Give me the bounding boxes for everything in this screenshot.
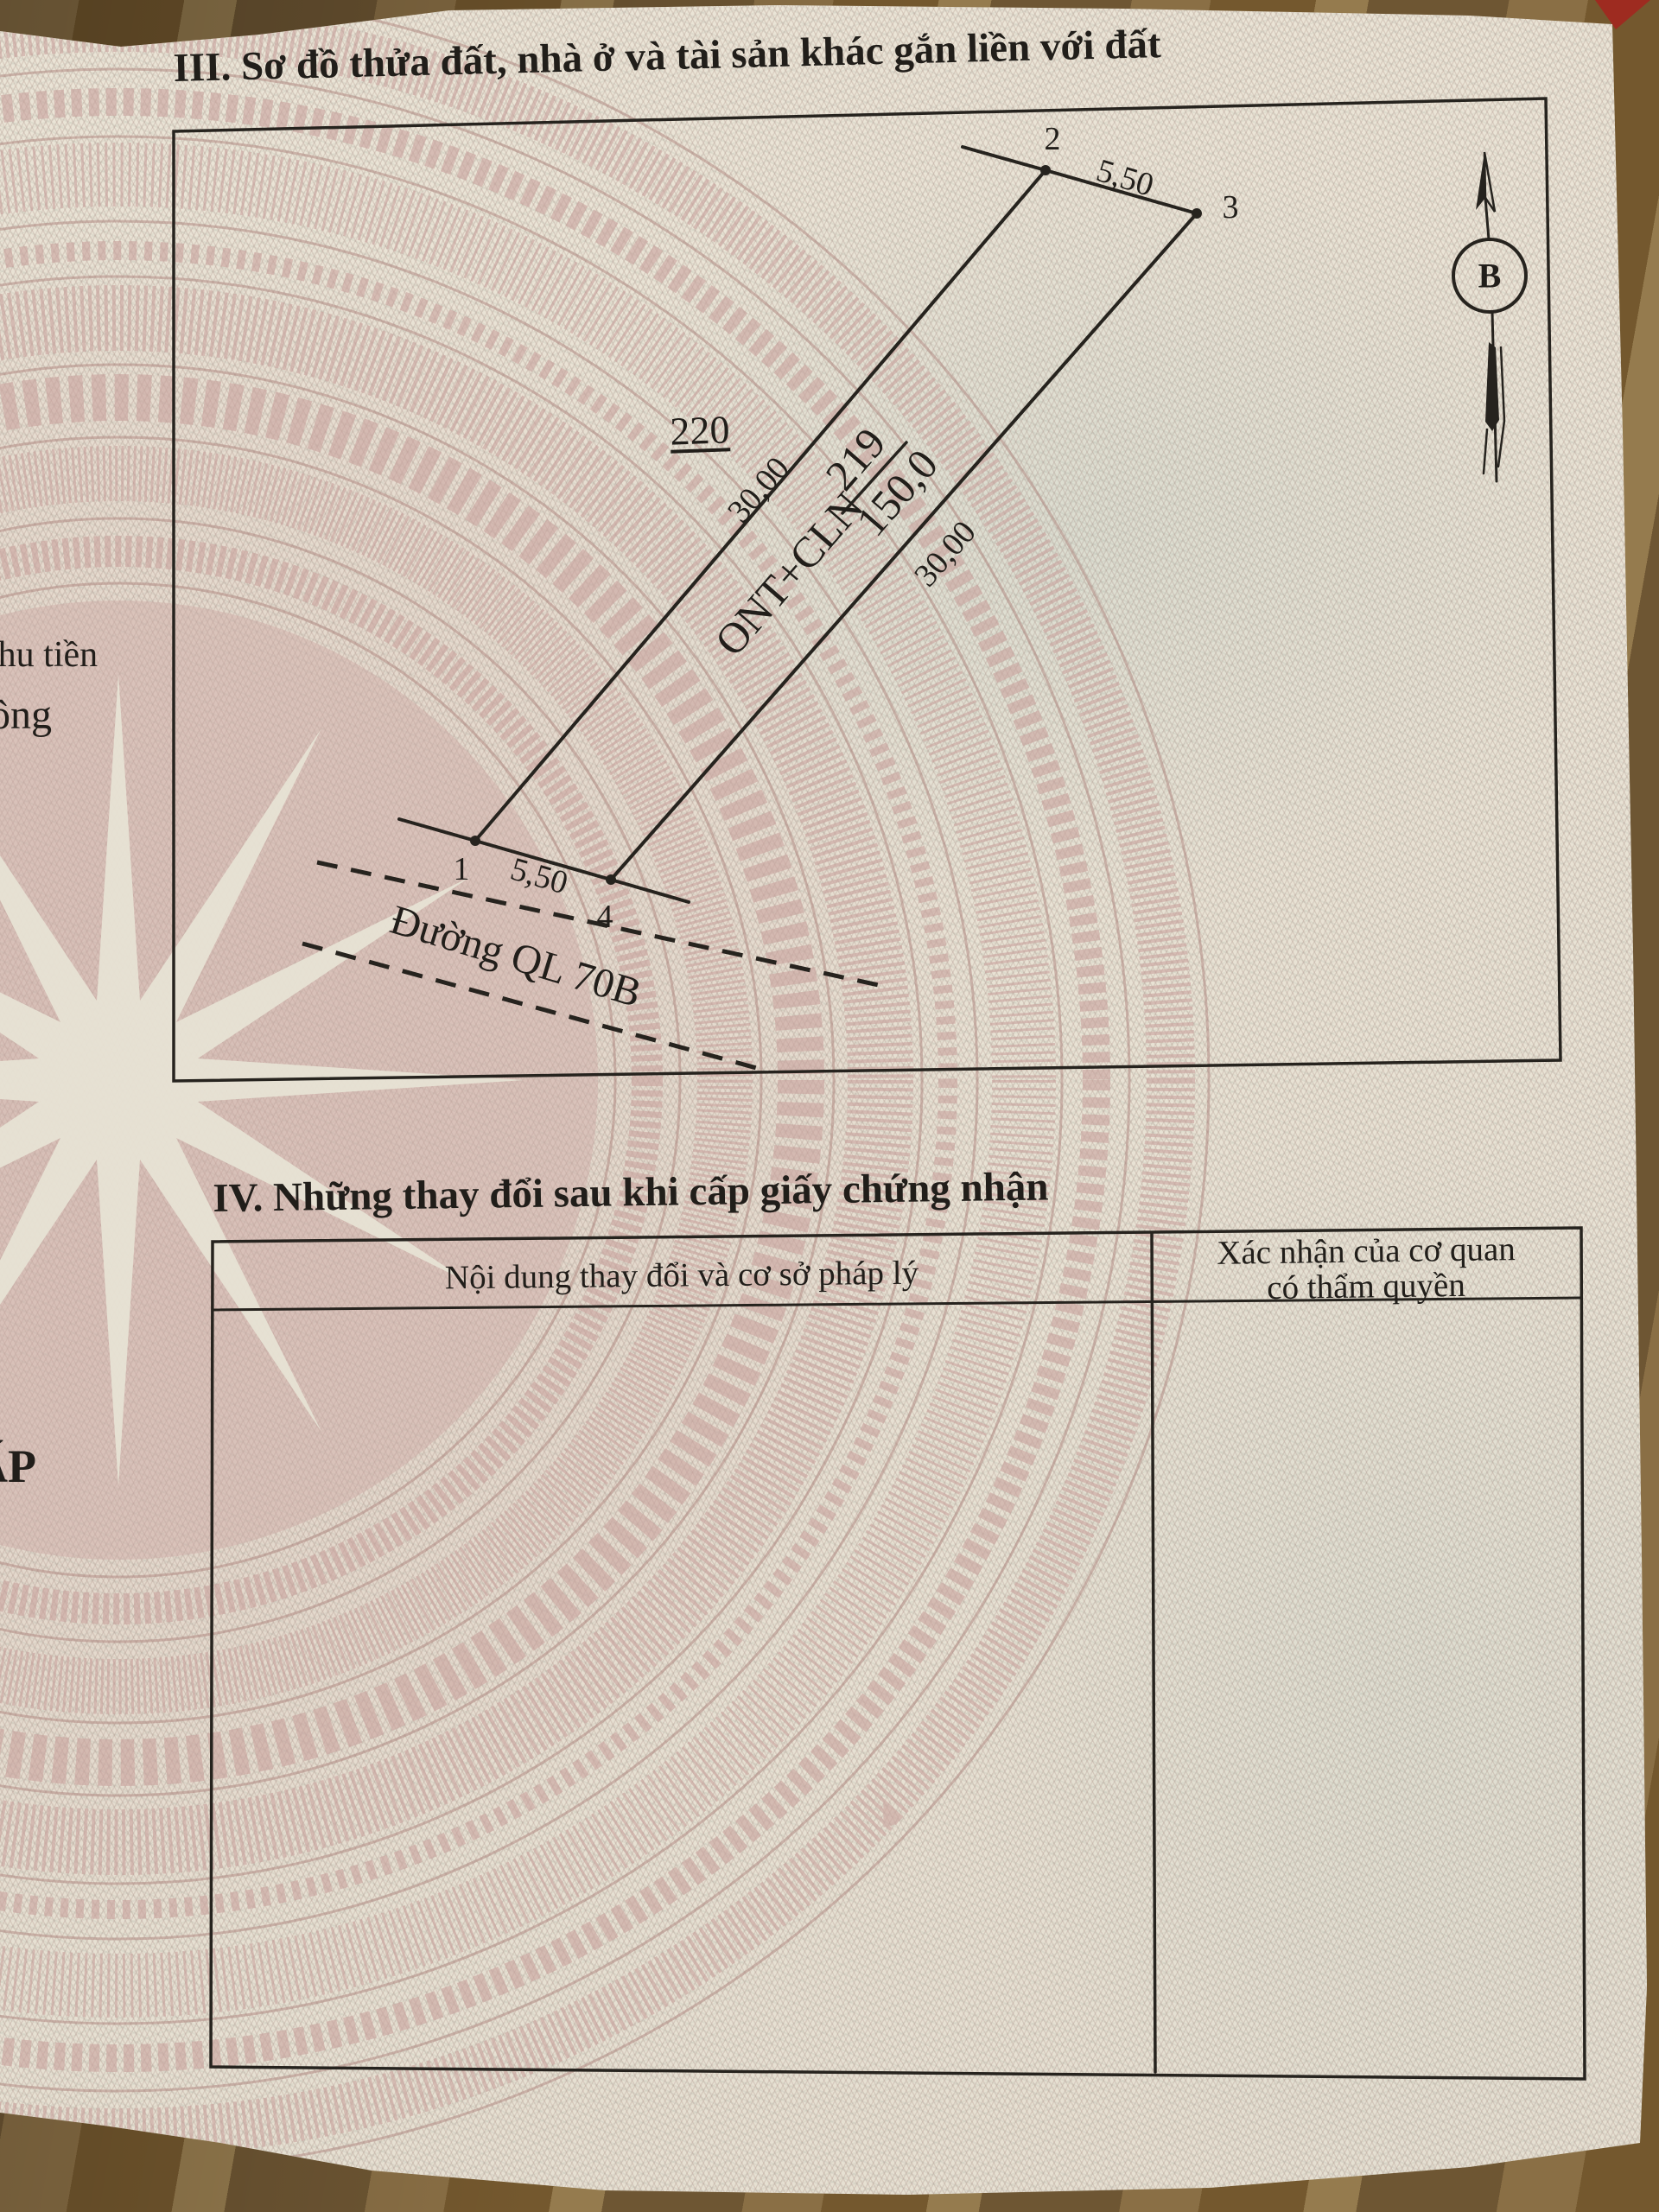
left-page-fragment-3: ẤP xyxy=(0,1440,36,1493)
certificate-page: III. Sơ đồ thửa đất, nhà ở và tài sản kh… xyxy=(0,0,1659,2212)
table-header-confirm-column-line1: Xác nhận của cơ quan xyxy=(1217,1230,1516,1273)
table-header-content-column: Nội dung thay đổi và cơ sở pháp lý xyxy=(445,1254,919,1298)
left-page-fragment-2: ông xyxy=(0,691,52,739)
vertex-label-1: 1 xyxy=(454,850,470,888)
north-letter: B xyxy=(1478,256,1502,296)
vertex-label-2: 2 xyxy=(1045,120,1061,158)
changes-table xyxy=(211,1228,1585,2079)
left-page-fragment-1: thu tiền xyxy=(0,634,98,676)
vertex-label-3: 3 xyxy=(1223,188,1239,226)
adjacent-parcel-label: 220 xyxy=(670,406,731,454)
ink-linework xyxy=(0,0,1659,2212)
vertex-label-4: 4 xyxy=(597,898,613,936)
north-arrow-icon xyxy=(1453,152,1526,481)
photo-of-certificate-on-wood-table: III. Sơ đồ thửa đất, nhà ở và tài sản kh… xyxy=(0,0,1659,2212)
table-header-confirm-column-line2: có thẩm quyền xyxy=(1267,1266,1465,1307)
